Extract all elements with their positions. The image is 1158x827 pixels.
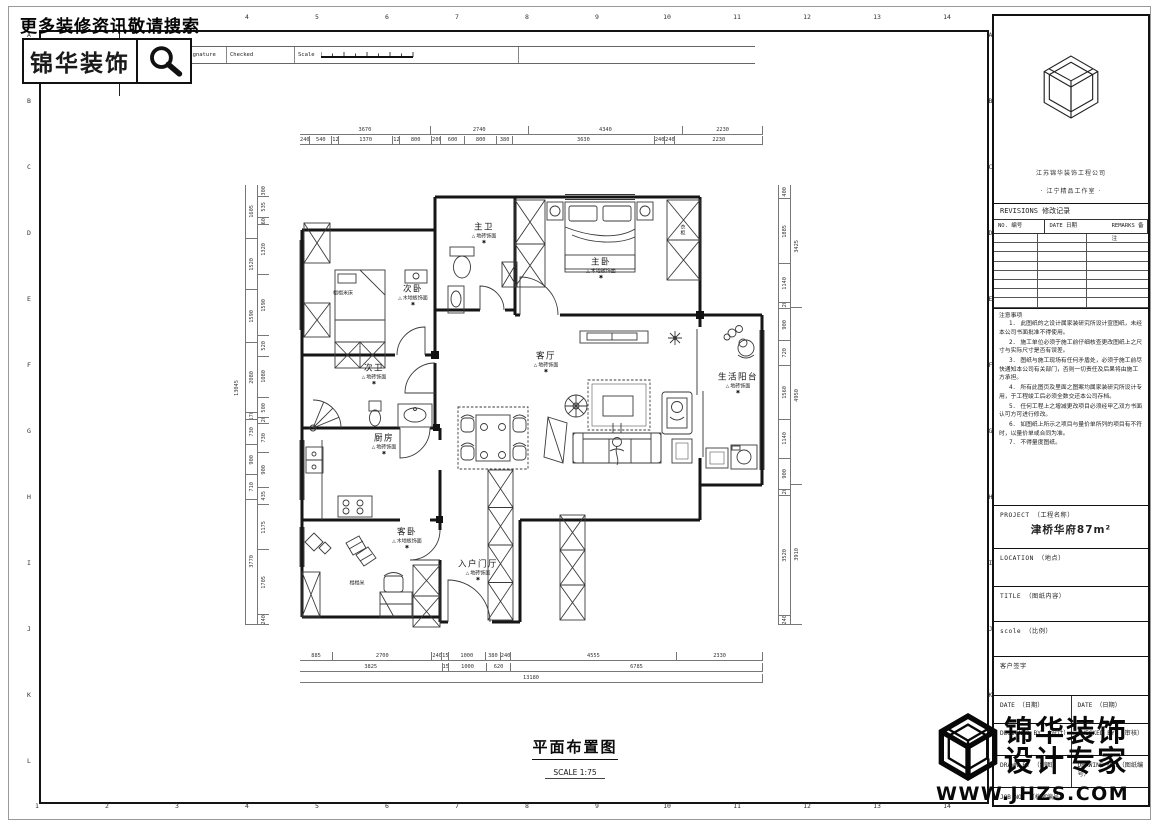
dim-value: 240 — [501, 652, 511, 660]
level-triangle-icon: △ — [472, 235, 475, 240]
note-item: 2． 施工单位必须于施工前仔细核查更改图纸上之尺寸与实际尺寸是否有误差。 — [999, 339, 1143, 356]
room-label-kitchen: 厨房 △地砖饰面 ✱ — [372, 432, 396, 457]
dim-value: 240 — [655, 136, 665, 144]
dim-chain-top-1: 3670274043402230 — [300, 126, 763, 135]
note-item: 7． 不得量度图纸。 — [999, 439, 1143, 448]
dim-value: 900 — [258, 453, 269, 488]
revisions-empty-row — [994, 280, 1148, 289]
grid-letter: H — [24, 464, 34, 530]
grid-letter: E — [24, 266, 34, 332]
grid-number: 3 — [142, 802, 212, 810]
grid-letter: I — [24, 530, 34, 596]
dim-value: 3520 — [779, 496, 790, 616]
walls — [302, 197, 762, 622]
dim-value: 4340 — [529, 126, 683, 134]
revisions-column-header: DATE 日期 — [1045, 220, 1107, 233]
dim-value: 240 — [665, 136, 675, 144]
dim-value: 1140 — [779, 264, 790, 303]
grid-letter: J — [24, 596, 34, 662]
dim-value: 885 — [300, 652, 333, 660]
dim-value: 1885 — [779, 199, 790, 264]
dim-value: 3670 — [300, 126, 431, 134]
grid-number: 8 — [492, 802, 562, 810]
grid-number: 13 — [842, 13, 912, 21]
magnifier-icon — [136, 38, 192, 84]
note-item: 3． 图纸与施工现场有任何矛盾处，必须于施工前尽快通知本公司有关部门，否则一切责… — [999, 357, 1143, 383]
elevation-mark-icon: ✱ — [586, 275, 615, 281]
rug-and-coffee-table-icon — [565, 380, 650, 430]
dim-value: 3425 — [791, 185, 802, 308]
grid-number: 5 — [282, 802, 352, 810]
balcony-fixtures — [706, 326, 757, 470]
elevation-mark-icon: ✱ — [458, 577, 498, 583]
project-field: PROJECT （工程名称） 津桥华府87m² — [994, 506, 1148, 549]
grid-number: 2 — [72, 802, 142, 810]
dim-value: 710 — [246, 475, 257, 499]
dim-value: 900 — [779, 459, 790, 490]
column-fills — [431, 311, 704, 523]
grid-number: 6 — [352, 13, 422, 21]
room-label-second-bath: 次卫 △地砖饰面 ✱ — [362, 362, 386, 387]
dim-value: 1320 — [258, 225, 269, 276]
dining-set-icon — [458, 407, 567, 469]
dim-value: 6785 — [511, 663, 763, 671]
title-field: TITLE （图纸内容） — [994, 587, 1148, 622]
dim-value: 1590 — [258, 275, 269, 336]
dim-value: 800 — [400, 136, 432, 144]
dim-total-left: 13045 — [234, 380, 240, 396]
dim-chain-left-outer: 16051520159020801707309007103770 — [245, 185, 257, 625]
studio-name: · 江宁精品工作室 · — [1041, 186, 1102, 195]
level-triangle-icon: △ — [726, 385, 729, 390]
elevation-mark-icon: ✱ — [534, 369, 558, 375]
dim-value: 120 — [258, 418, 269, 425]
revisions-empty-row — [994, 298, 1148, 307]
dim-value: 380 — [497, 136, 513, 144]
room-label-living: 客厅 △地砖饰面 ✱ — [534, 350, 558, 375]
tv-wall-icon — [580, 331, 682, 345]
grid-number: 12 — [772, 802, 842, 810]
dim-value: 720 — [779, 341, 790, 366]
dim-value: 2740 — [431, 126, 529, 134]
dim-value: 300 — [258, 185, 269, 197]
revisions-empty-row — [994, 252, 1148, 261]
dim-value: 600 — [441, 136, 465, 144]
location-field: LOCATION （地点） — [994, 549, 1148, 587]
room-label-master-bath: 主卫 △地砖饰面 ✱ — [472, 221, 496, 246]
revisions-empty-row — [994, 271, 1148, 280]
grid-number: 4 — [212, 802, 282, 810]
dim-value: 170 — [246, 413, 257, 420]
dim-value: 500 — [258, 398, 269, 418]
plan-title-block: 平面布置图 SCALE 1:75 — [500, 736, 650, 779]
dim-value: 240 — [432, 652, 442, 660]
dim-chain-bottom-1: 8852700240150100038024045552330 — [300, 652, 763, 661]
dim-chain-right-outer: 342549503910 — [790, 185, 802, 625]
dim-value: 1080 — [258, 357, 269, 399]
dim-value: 120 — [332, 136, 339, 144]
dim-value: 1705 — [258, 550, 269, 615]
notes-section: 注意事项 1． 此图纸的之设计属家装研究所设计宣图纸，未经本公司书面批准不得使用… — [994, 309, 1148, 506]
level-triangle-icon: △ — [392, 540, 395, 545]
room-label-master-bed: 主卧 △木地板饰面 ✱ — [586, 256, 615, 281]
kitchen-fixtures — [306, 440, 372, 520]
sofa-icon — [573, 423, 661, 465]
revisions-section: REVISIONS 修改记录 NO. 编号DATE 日期REMARKS 备注 — [994, 204, 1148, 309]
grid-number: 6 — [352, 802, 422, 810]
dim-value: 3910 — [791, 485, 802, 625]
revisions-header: NO. 编号DATE 日期REMARKS 备注 — [994, 220, 1148, 234]
dim-chain-right-inner: 4001885114012090072015601140900120352024… — [778, 185, 790, 625]
dim-value: 2230 — [683, 126, 763, 134]
label-tatami: 榻榻米 — [349, 580, 364, 587]
dim-value: 2230 — [675, 136, 763, 144]
watermark-url: WWW.JHZS.COM — [936, 783, 1156, 805]
graphic-scale-bar — [321, 51, 416, 59]
dim-chain-top-2: 2405401201370120800200600800380363024024… — [300, 136, 763, 145]
dim-value: 620 — [487, 663, 511, 671]
dim-value: 2330 — [677, 652, 763, 660]
revisions-column-header: NO. 编号 — [994, 220, 1045, 233]
dim-value: 1520 — [246, 239, 257, 290]
second-bath-fixtures — [310, 400, 432, 431]
grid-number: 7 — [422, 13, 492, 21]
dim-value: 1370 — [339, 136, 393, 144]
search-hint-text: 更多装修资讯敬请搜索 — [20, 12, 200, 37]
notes-list: 1． 此图纸的之设计属家装研究所设计宣图纸，未经本公司书面批准不得使用。2． 施… — [999, 320, 1143, 448]
watermark-brand: 锦华装饰 — [1004, 717, 1128, 747]
grid-number: 10 — [632, 802, 702, 810]
dim-value: 520 — [258, 336, 269, 357]
level-triangle-icon: △ — [534, 364, 537, 369]
revisions-column-header: REMARKS 备注 — [1108, 220, 1148, 233]
elevation-mark-icon: ✱ — [362, 381, 386, 387]
dim-value: 3825 — [300, 663, 443, 671]
grid-ruler-left: ABCDEFGHIJKL — [24, 2, 34, 794]
dim-chain-bottom-2: 382515010006206785 — [300, 663, 763, 672]
brand-watermark: 锦华装饰 设计专家 WWW.JHZS.COM — [936, 712, 1156, 805]
plan-title: 平面布置图 — [532, 736, 617, 760]
grid-number: 9 — [562, 13, 632, 21]
grid-letter: L — [24, 728, 34, 794]
elevation-mark-icon: ✱ — [392, 545, 421, 551]
grid-ruler-top: 4567891011121314 — [212, 13, 982, 21]
dim-value: 1000 — [449, 663, 487, 671]
dim-value: 2080 — [246, 343, 257, 413]
header-cell-empty — [519, 47, 755, 63]
dim-value: 400 — [779, 185, 790, 199]
grid-number: 10 — [632, 13, 702, 21]
dim-value: 120 — [393, 136, 400, 144]
floor-plan — [280, 115, 805, 707]
dim-value: 540 — [310, 136, 332, 144]
revisions-empty-row — [994, 234, 1148, 243]
dim-value: 900 — [246, 445, 257, 476]
grid-number: 11 — [702, 802, 772, 810]
dim-value: 2700 — [333, 652, 432, 660]
dim-value: 200 — [432, 136, 441, 144]
grid-number: 1 — [2, 802, 72, 810]
grid-number: 12 — [772, 13, 842, 21]
brand-logo-box: 锦华装饰 — [22, 38, 138, 84]
room-label-balcony: 生活阳台 △地砖饰面 ✱ — [718, 371, 758, 396]
revisions-rows — [994, 234, 1148, 308]
label-wardrobe: 衣柜 — [680, 224, 687, 236]
note-item: 4． 所有此图页及里面之图案均属家装研究所设计专用，于工程竣工后必须全数交还本公… — [999, 384, 1143, 401]
grid-letter: D — [24, 200, 34, 266]
dim-value: 13180 — [300, 674, 763, 682]
company-name: 江苏锦华装饰工程公司 — [1036, 168, 1106, 177]
note-item: 6． 如图纸上所示之项目与量价单所列的项目有不符时，以量价单或合同为准。 — [999, 421, 1143, 438]
room-label-entry: 入户门厅 △地砖饰面 ✱ — [458, 558, 498, 583]
elevation-mark-icon: ✱ — [718, 390, 758, 396]
grid-letter: K — [24, 662, 34, 728]
dim-chain-left-inner: 3005356013201590520108050012073090043511… — [257, 185, 269, 625]
grid-letter: C — [24, 134, 34, 200]
dim-value: 240 — [300, 136, 310, 144]
dim-value: 4555 — [511, 652, 678, 660]
grid-number: 13 — [842, 802, 912, 810]
grid-number: 11 — [702, 13, 772, 21]
drawing-sheet: 4567891011121314 1234567891011121314 ABC… — [0, 0, 1158, 827]
armchair-icon — [662, 392, 692, 463]
dim-value: 240 — [258, 615, 269, 625]
grid-number: 7 — [422, 802, 492, 810]
company-logo-section: 江苏锦华装饰工程公司 · 江宁精品工作室 · — [994, 16, 1148, 204]
client-signature-field: 客户签字 — [994, 657, 1148, 696]
cube-watermark-icon — [936, 712, 1000, 782]
room-label-guest-bed: 客卧 △木地板饰面 ✱ — [392, 526, 421, 551]
grid-number: 14 — [912, 13, 982, 21]
dim-chain-bottom-total: 13180 — [300, 674, 763, 683]
elevation-mark-icon: ✱ — [398, 302, 427, 308]
dim-value: 730 — [246, 420, 257, 445]
dim-value: 1590 — [246, 290, 257, 343]
cube-logo-icon — [1040, 54, 1102, 120]
dim-value: 900 — [779, 309, 790, 340]
label-tatami-bed: 榻榻米床 — [333, 290, 353, 297]
revisions-empty-row — [994, 289, 1148, 298]
dim-value: 3630 — [513, 136, 655, 144]
dim-value: 435 — [258, 488, 269, 505]
project-name: 津桥华府87m² — [1000, 522, 1142, 537]
dim-value: 1560 — [779, 366, 790, 420]
revisions-empty-row — [994, 262, 1148, 271]
master-bath-fixtures — [448, 247, 474, 313]
revisions-empty-row — [994, 243, 1148, 252]
dim-value: 1140 — [779, 420, 790, 459]
dim-value: 1175 — [258, 505, 269, 550]
dim-value: 240 — [779, 616, 790, 625]
header-cell-checked: Checked — [227, 47, 295, 63]
plan-scale-text: SCALE 1:75 — [545, 768, 604, 779]
level-triangle-icon: △ — [398, 297, 401, 302]
grid-letter: F — [24, 332, 34, 398]
level-triangle-icon: △ — [362, 376, 365, 381]
grid-number: 4 — [212, 13, 282, 21]
revisions-title: REVISIONS 修改记录 — [994, 204, 1148, 220]
grid-ruler-bottom: 1234567891011121314 — [2, 802, 982, 810]
level-triangle-icon: △ — [372, 446, 375, 451]
grid-number: 5 — [282, 13, 352, 21]
level-triangle-icon: △ — [586, 270, 589, 275]
dim-value: 800 — [465, 136, 497, 144]
scale-field: scole （比例） — [994, 622, 1148, 657]
dim-value: 3770 — [246, 500, 257, 625]
grid-number: 8 — [492, 13, 562, 21]
dim-value: 380 — [486, 652, 501, 660]
elevation-mark-icon: ✱ — [472, 240, 496, 246]
notes-title: 注意事项 — [999, 312, 1143, 321]
room-label-second-bed: 次卧 △木地板饰面 ✱ — [398, 283, 427, 308]
note-item: 5． 任何工程上之增减更改项目必须经甲乙双方书面认可方可进行修改。 — [999, 403, 1143, 420]
header-cell-scale: Scale — [295, 47, 519, 63]
dim-value: 1000 — [449, 652, 486, 660]
title-block: 江苏锦华装饰工程公司 · 江宁精品工作室 · REVISIONS 修改记录 NO… — [992, 14, 1150, 807]
elevation-mark-icon: ✱ — [372, 451, 396, 457]
grid-letter: G — [24, 398, 34, 464]
dim-value: 60 — [258, 218, 269, 225]
watermark-tagline: 设计专家 — [1004, 747, 1128, 777]
dim-value: 4950 — [791, 308, 802, 485]
dim-value: 535 — [258, 197, 269, 218]
dim-value: 1605 — [246, 185, 257, 239]
note-item: 1． 此图纸的之设计属家装研究所设计宣图纸，未经本公司书面批准不得使用。 — [999, 320, 1143, 337]
level-triangle-icon: △ — [466, 572, 469, 577]
dim-value: 730 — [258, 424, 269, 452]
grid-number: 9 — [562, 802, 632, 810]
